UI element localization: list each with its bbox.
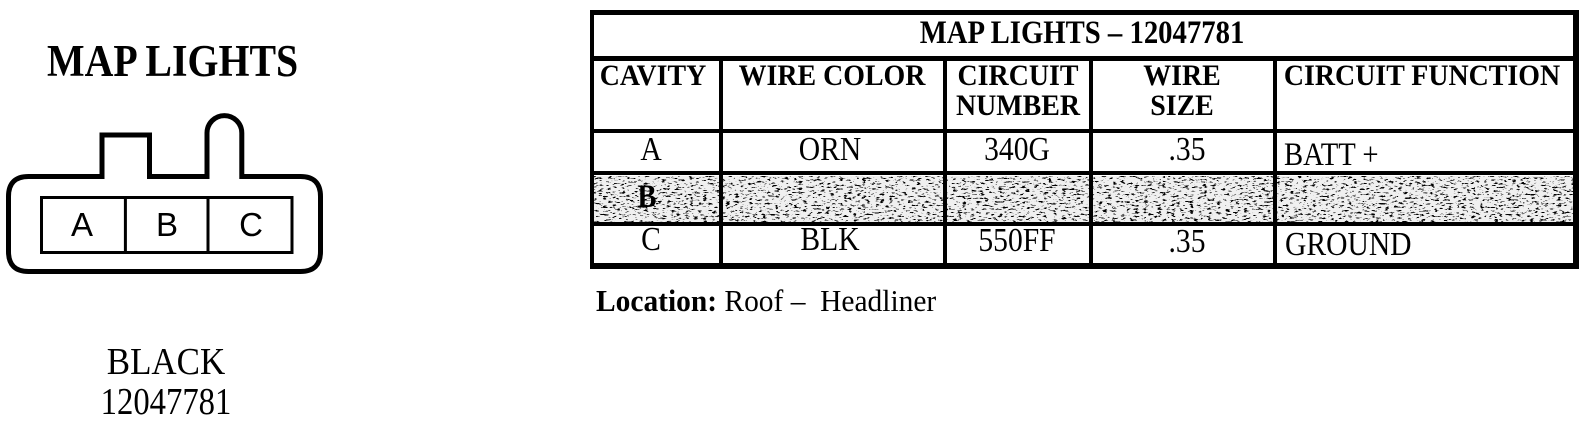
svg-text:C: C: [239, 206, 263, 243]
svg-text:B: B: [156, 206, 178, 243]
svg-text:A: A: [71, 206, 93, 243]
